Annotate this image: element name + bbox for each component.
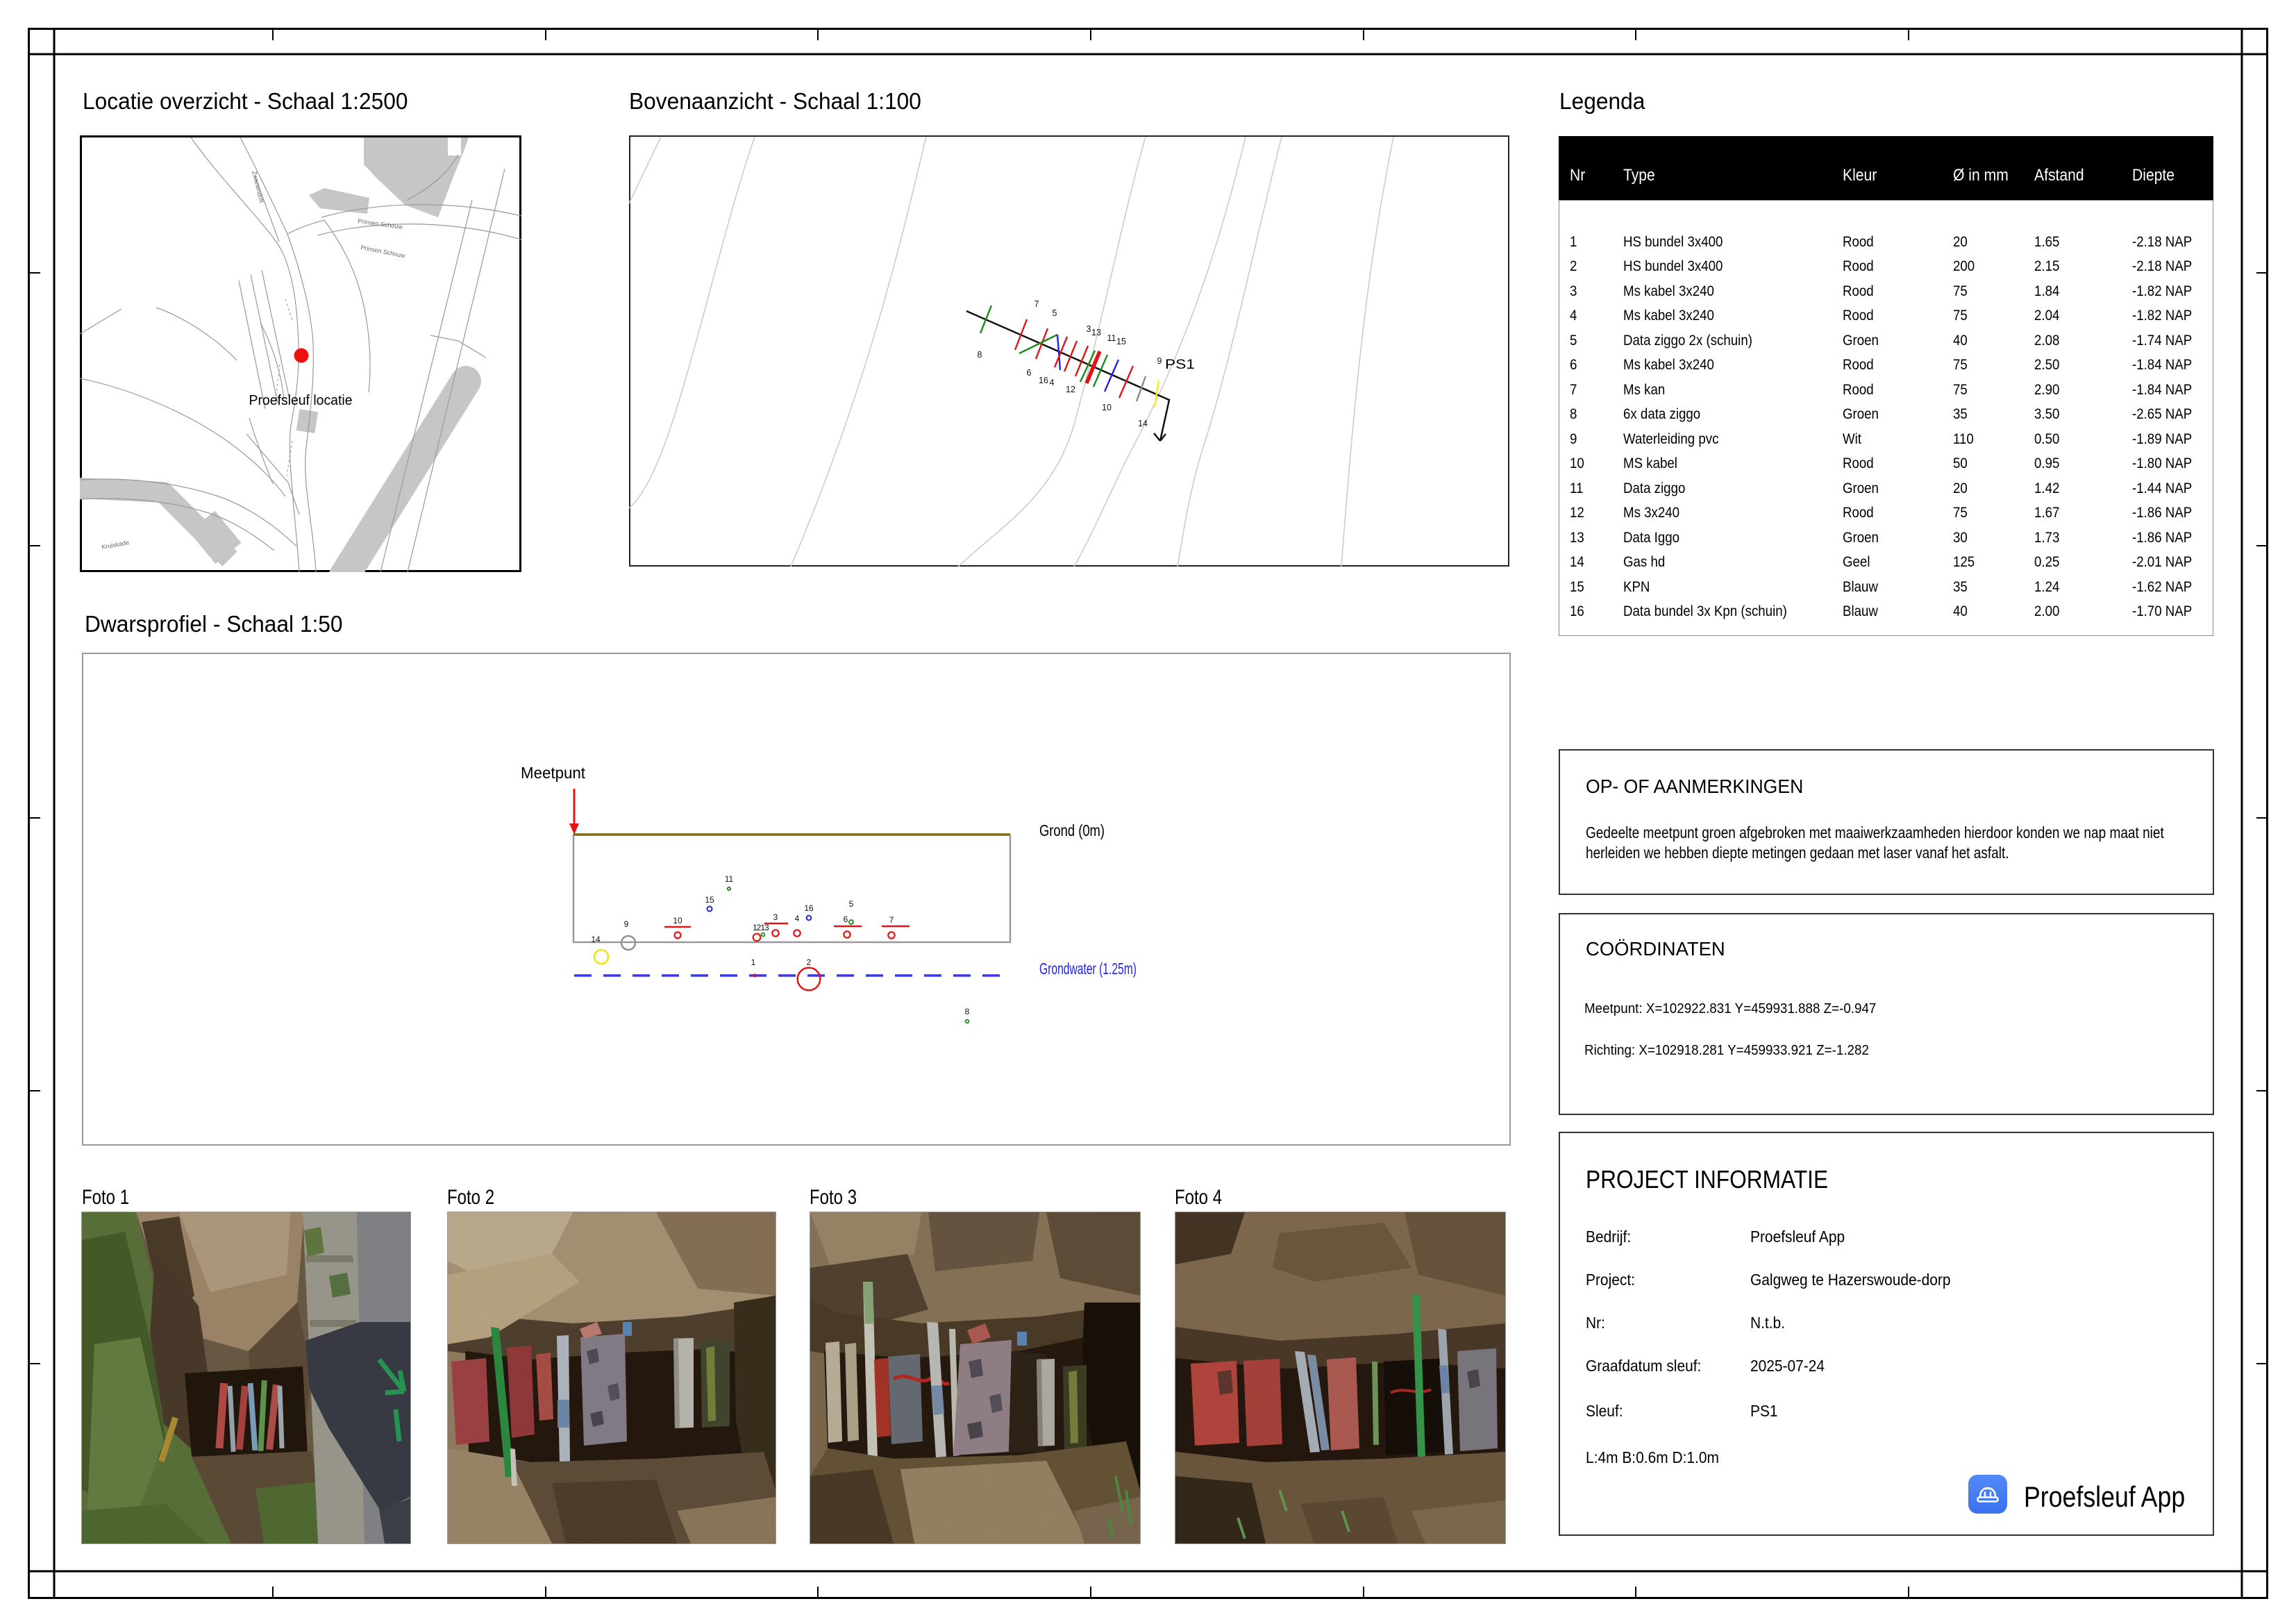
svg-text:5: 5 xyxy=(849,899,854,909)
svg-text:8: 8 xyxy=(965,1007,970,1016)
svg-text:12: 12 xyxy=(1066,385,1075,394)
svg-text:14: 14 xyxy=(591,935,601,944)
svg-text:3: 3 xyxy=(1087,324,1091,334)
svg-text:Grondwater (1.25m): Grondwater (1.25m) xyxy=(1039,960,1137,978)
svg-text:7: 7 xyxy=(1034,299,1039,309)
svg-text:9: 9 xyxy=(624,919,629,929)
svg-text:11: 11 xyxy=(725,874,734,884)
svg-text:Grond (0m): Grond (0m) xyxy=(1039,821,1105,839)
svg-text:7: 7 xyxy=(889,915,894,925)
svg-text:15: 15 xyxy=(1116,337,1126,346)
svg-text:8: 8 xyxy=(978,350,982,360)
svg-text:Proefsleuf locatie: Proefsleuf locatie xyxy=(249,393,353,408)
svg-text:2: 2 xyxy=(807,957,812,967)
svg-text:9: 9 xyxy=(1157,356,1162,366)
svg-text:15: 15 xyxy=(705,895,714,905)
svg-text:4: 4 xyxy=(795,914,800,923)
svg-text:5: 5 xyxy=(1053,308,1057,318)
svg-text:16: 16 xyxy=(1039,376,1048,385)
svg-text:1: 1 xyxy=(751,957,756,967)
svg-text:11: 11 xyxy=(1107,333,1116,343)
svg-text:Meetpunt: Meetpunt xyxy=(521,764,586,782)
svg-text:6: 6 xyxy=(1027,368,1032,378)
svg-text:16: 16 xyxy=(804,903,814,913)
svg-text:PS1: PS1 xyxy=(1165,358,1195,372)
svg-text:10: 10 xyxy=(1102,403,1112,412)
svg-text:6: 6 xyxy=(844,914,848,924)
svg-text:1213: 1213 xyxy=(753,923,769,932)
svg-text:3: 3 xyxy=(773,912,778,922)
svg-text:14: 14 xyxy=(1138,419,1148,428)
svg-text:4: 4 xyxy=(1050,378,1055,387)
svg-text:13: 13 xyxy=(1091,328,1101,337)
svg-text:10: 10 xyxy=(673,916,682,926)
